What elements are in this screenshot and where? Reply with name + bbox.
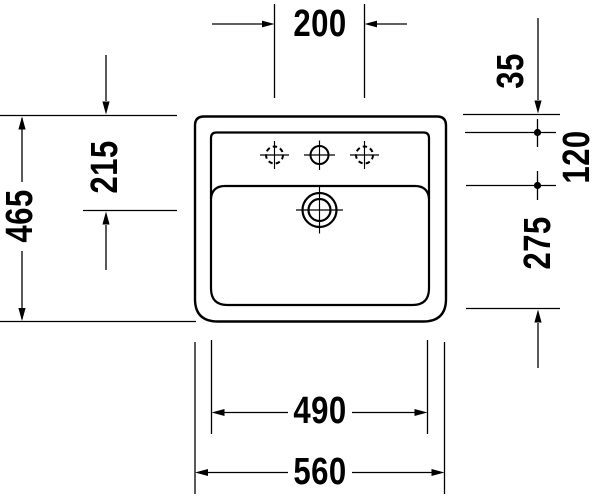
drain-hole — [296, 187, 343, 234]
dim-label-faucet-hole-spacing: 200 — [293, 5, 346, 43]
dim-label-overall-width: 560 — [293, 453, 346, 491]
dim-label-bowl-inner-width: 490 — [293, 392, 346, 430]
dim-label-faucet-axis-to-shelf: 120 — [558, 130, 596, 183]
dim-label-back-to-faucet-axis: 35 — [492, 53, 530, 88]
washbasin-technical-drawing: 200 465 215 35 120 275 490 560 — [0, 0, 600, 500]
faucet-hole-right — [350, 141, 379, 169]
basin-outline — [195, 117, 446, 322]
dim-faucet-axis-to-shelf — [465, 119, 556, 200]
faucet-holes — [260, 141, 379, 171]
dim-label-overall-depth: 465 — [1, 189, 39, 242]
dim-label-back-to-drain-center: 215 — [86, 140, 124, 193]
basin-outer-edge — [195, 117, 446, 322]
dim-shelf-to-front-inner — [466, 309, 560, 369]
faucet-hole-center — [304, 141, 335, 171]
dim-label-shelf-to-front-inner: 275 — [519, 216, 557, 269]
faucet-hole-left — [260, 141, 289, 169]
